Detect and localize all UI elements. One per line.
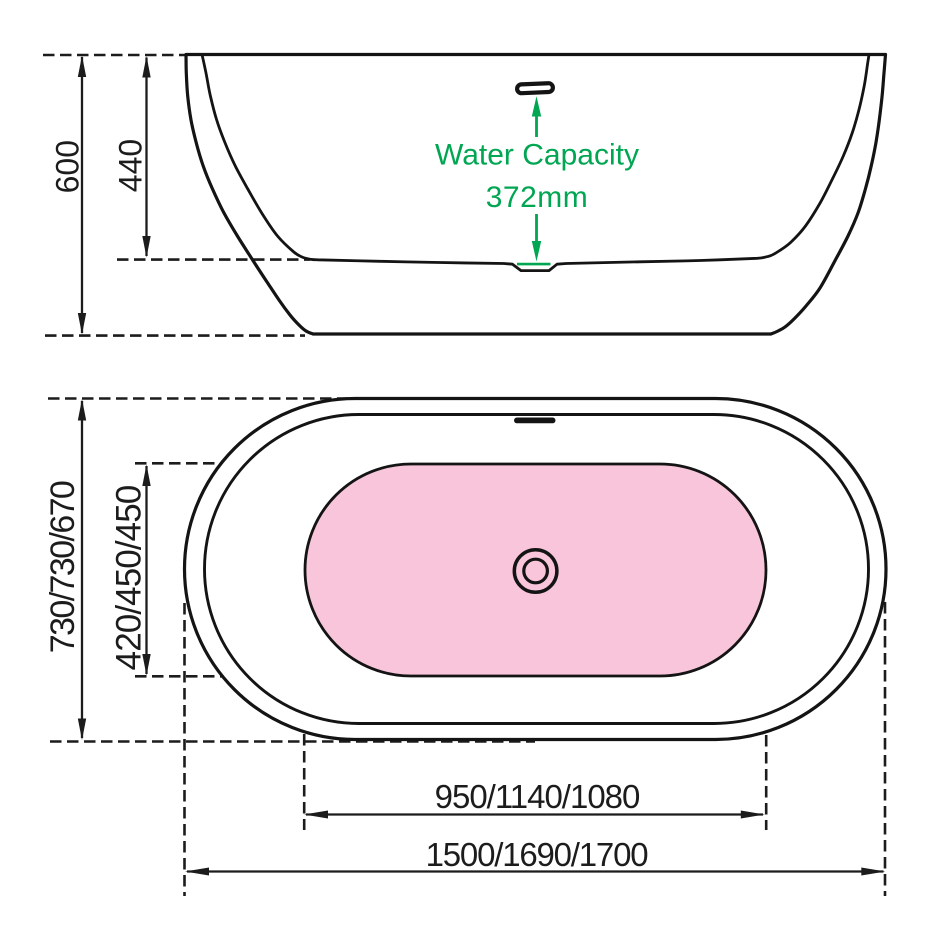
svg-text:730/730/670: 730/730/670 [44,481,82,653]
svg-text:420/450/450: 420/450/450 [110,485,149,670]
svg-text:600: 600 [50,140,86,193]
svg-text:372mm: 372mm [486,181,589,214]
svg-text:1500/1690/1700: 1500/1690/1700 [426,836,649,873]
svg-text:950/1140/1080: 950/1140/1080 [435,778,640,815]
svg-text:440: 440 [113,139,149,192]
svg-text:Water Capacity: Water Capacity [435,139,639,172]
